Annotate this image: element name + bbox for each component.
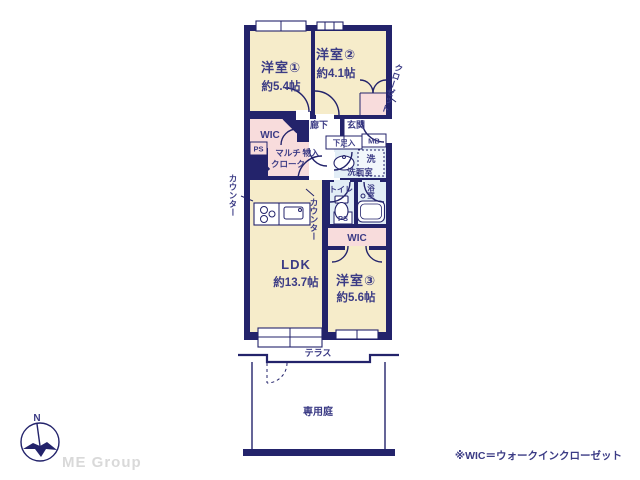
- window-ldk-sliding: [258, 328, 322, 347]
- compass-north-label: N: [33, 413, 40, 424]
- compass-icon: N: [21, 413, 59, 461]
- floorplan-drawing: 洋室① 約5.4帖 洋室② 約4.1帖 洋室③ 約5.6帖 LDK 約13.7帖…: [0, 0, 640, 480]
- window-yoshitsu2: [317, 22, 343, 30]
- terrace-garden: [238, 355, 399, 456]
- label-yoshitsu1-name: 洋室①: [261, 60, 301, 75]
- garden-gate-arc: [267, 363, 287, 383]
- label-monoire: 物入: [302, 148, 320, 158]
- label-laundry: 洗: [366, 153, 375, 164]
- label-ps-lower: PS: [338, 214, 348, 223]
- label-yoshitsu1-size: 約5.4帖: [262, 79, 301, 93]
- kitchen-counter: [254, 203, 310, 225]
- label-mb: MB: [368, 137, 380, 146]
- label-terrace: テラス: [305, 348, 332, 358]
- label-wic-lower: WIC: [347, 233, 366, 244]
- floorplan-page: 洋室① 約5.4帖 洋室② 約4.1帖 洋室③ 約5.6帖 LDK 約13.7帖…: [0, 0, 640, 480]
- brand-logo-text: ME Group: [62, 454, 142, 471]
- label-toilet: トイレ: [329, 185, 353, 194]
- label-genkan: 玄関: [347, 119, 365, 130]
- label-garden: 専用庭: [303, 405, 334, 418]
- label-ldk-size: 約13.7帖: [273, 275, 319, 289]
- label-ldk-name: LDK: [281, 257, 311, 272]
- window-yoshitsu3: [336, 330, 378, 339]
- door-opening-yoshitsu1: [296, 110, 310, 120]
- label-senmenshitsu: 洗面室: [347, 167, 373, 177]
- label-counter-left: カウンター: [228, 174, 238, 217]
- wic-footnote: ※WIC＝ウォークインクローゼット: [455, 449, 622, 462]
- label-multicloak-1: マルチ: [275, 148, 301, 158]
- label-wic-upper: WIC: [260, 130, 279, 141]
- label-ps-upper: PS: [253, 145, 263, 154]
- room-yoshitsu3: [328, 250, 386, 332]
- label-yoshitsu3-size: 約5.6帖: [337, 290, 376, 304]
- door-opening-toilet: [334, 180, 350, 184]
- garden-wall-bottom: [243, 449, 395, 456]
- label-counter-mid: カウンター: [309, 198, 319, 241]
- label-bath: 浴室: [366, 183, 375, 201]
- label-rouka: 廊下: [310, 119, 328, 130]
- label-multicloak-2: クローク: [271, 159, 305, 169]
- window-yoshitsu1: [256, 21, 306, 31]
- label-getabako: 下足入: [333, 139, 356, 148]
- label-yoshitsu2-name: 洋室②: [316, 47, 356, 62]
- label-yoshitsu3-name: 洋室③: [336, 273, 376, 288]
- label-yoshitsu2-size: 約4.1帖: [317, 66, 356, 80]
